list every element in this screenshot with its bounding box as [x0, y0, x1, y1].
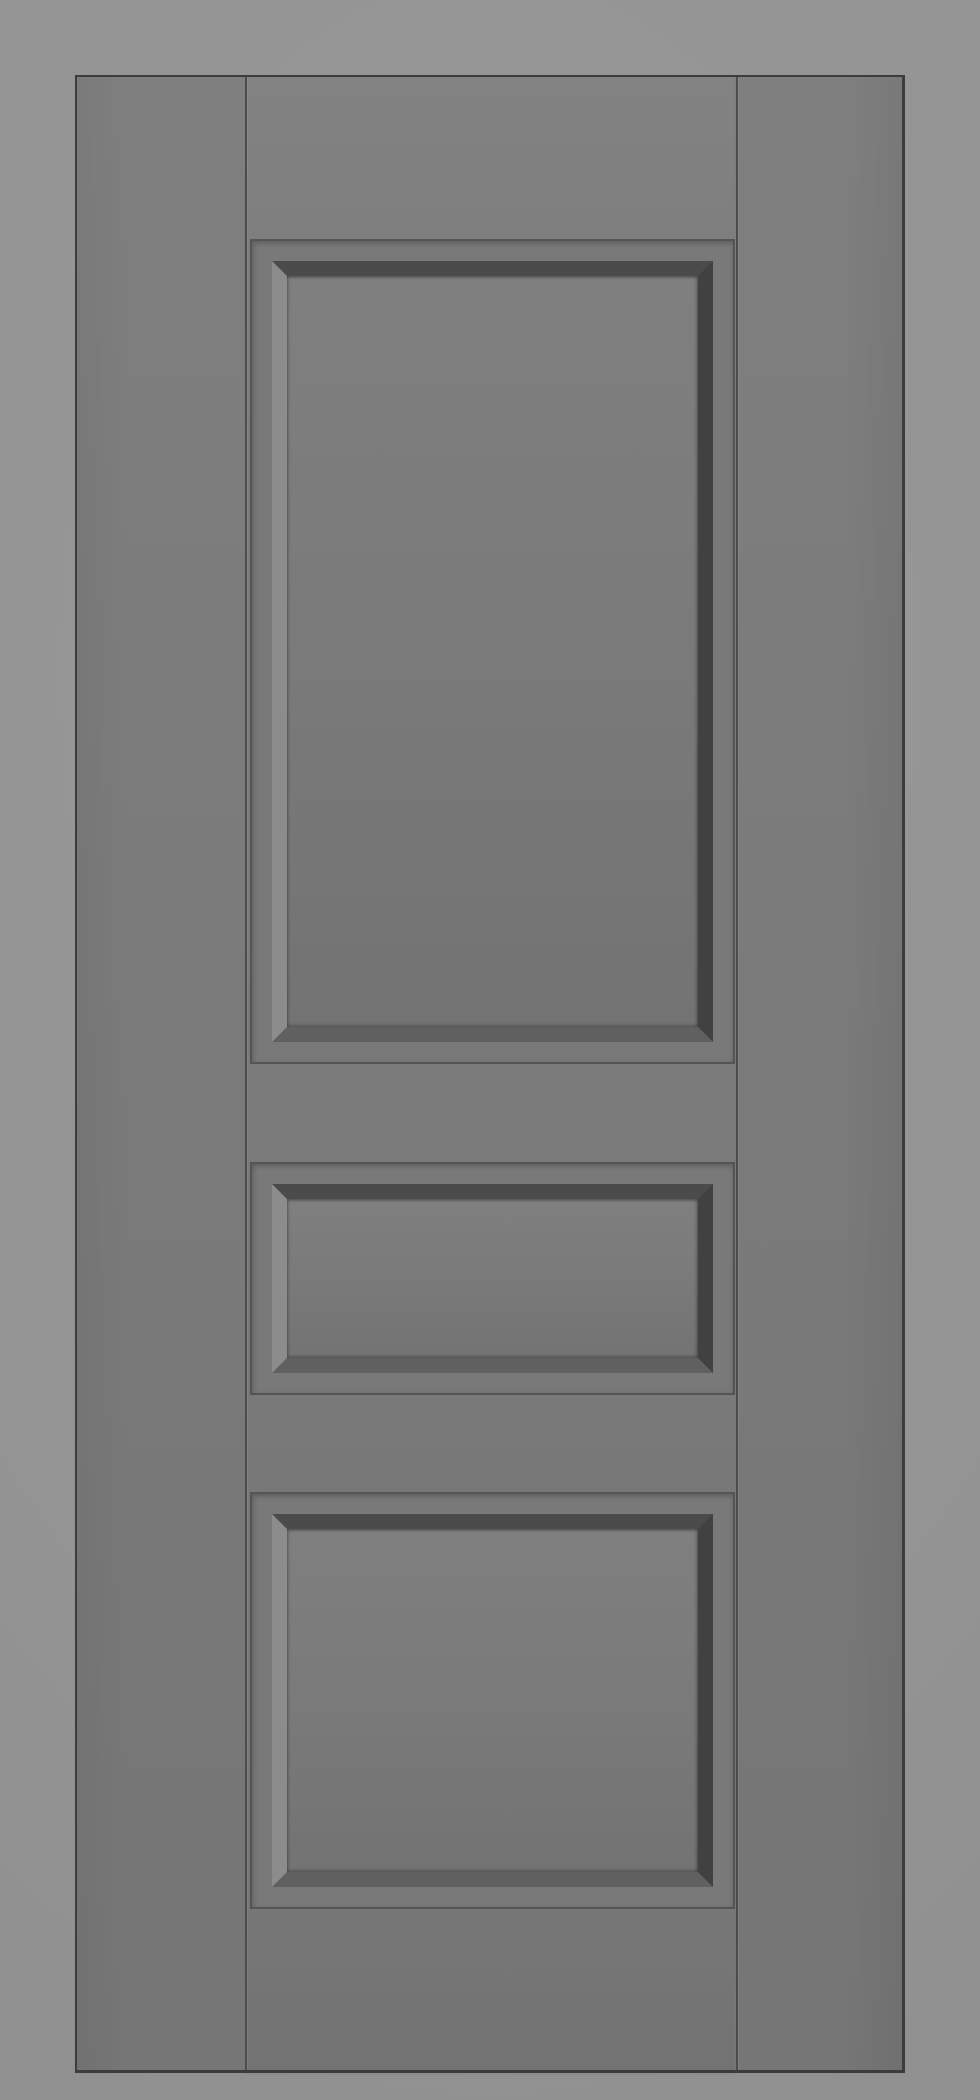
- top-panel-face: [287, 276, 698, 1027]
- scene: [0, 0, 980, 2100]
- bottom-panel-bevel: [272, 1514, 713, 1887]
- left-stile-seam: [245, 77, 247, 2070]
- bottom-rail: [246, 1909, 734, 2075]
- door: [75, 75, 905, 2073]
- top-panel-bevel: [272, 261, 713, 1042]
- right-stile-seam: [736, 77, 738, 2070]
- left-stile: [77, 77, 246, 2070]
- bottom-panel-face: [287, 1529, 698, 1872]
- middle-panel-bevel: [272, 1184, 713, 1373]
- lock-rail: [246, 1064, 734, 1162]
- middle-panel-face: [287, 1199, 698, 1358]
- bottom-panel: [250, 1492, 735, 1909]
- top-panel: [250, 239, 735, 1064]
- top-rail: [246, 77, 734, 239]
- intermediate-rail: [246, 1395, 734, 1492]
- right-stile: [734, 77, 902, 2070]
- middle-panel: [250, 1162, 735, 1395]
